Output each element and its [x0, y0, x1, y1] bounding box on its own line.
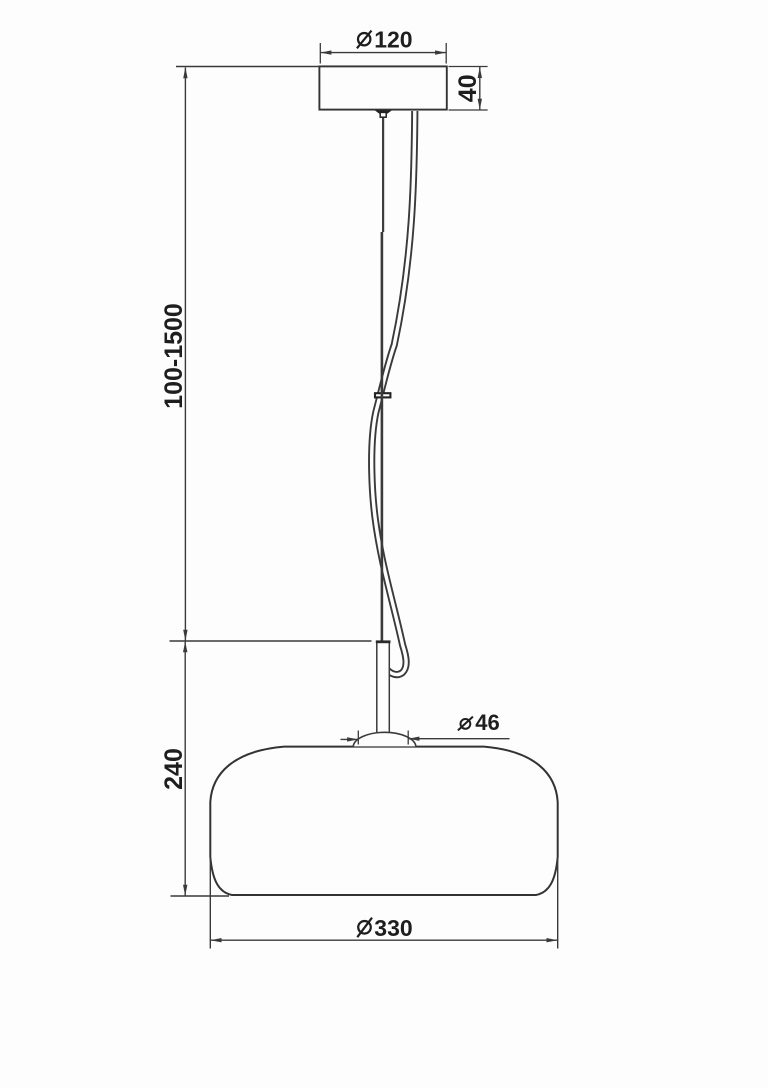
svg-text:120: 120: [374, 27, 412, 53]
svg-text:40: 40: [454, 74, 482, 102]
svg-text:240: 240: [160, 748, 188, 790]
svg-text:46: 46: [475, 710, 499, 735]
svg-text:100-1500: 100-1500: [160, 303, 188, 409]
svg-text:330: 330: [374, 915, 412, 941]
